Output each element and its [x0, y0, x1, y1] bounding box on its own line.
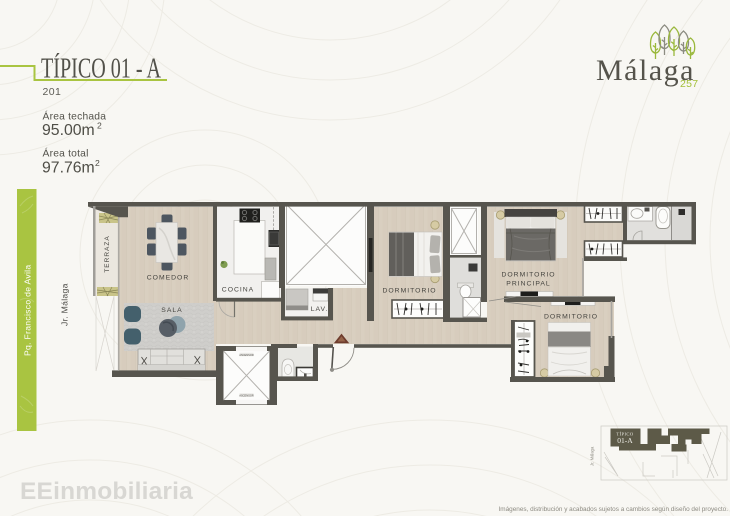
svg-text:201: 201: [43, 86, 62, 98]
svg-text:2: 2: [97, 121, 102, 131]
svg-text:COMEDOR: COMEDOR: [147, 275, 190, 282]
svg-text:ASCENSOR: ASCENSOR: [239, 393, 254, 397]
svg-text:DORMITORIO: DORMITORIO: [501, 272, 555, 279]
svg-text:COCINA: COCINA: [222, 287, 254, 294]
svg-text:ASCENSOR: ASCENSOR: [239, 353, 254, 357]
svg-text:Jr. Málaga: Jr. Málaga: [60, 283, 70, 326]
svg-text:TÍPICO 01 - A: TÍPICO 01 - A: [41, 52, 161, 85]
svg-text:SALA: SALA: [161, 307, 182, 314]
svg-text:DORMITORIO: DORMITORIO: [544, 314, 598, 321]
svg-text:Área total: Área total: [43, 147, 89, 160]
svg-text:2: 2: [95, 158, 100, 168]
svg-text:01-A: 01-A: [617, 436, 633, 445]
svg-text:257: 257: [680, 78, 698, 90]
svg-text:97.76m: 97.76m: [42, 160, 95, 177]
svg-text:LAV.: LAV.: [311, 306, 329, 313]
svg-text:Jr. Málaga: Jr. Málaga: [590, 446, 595, 466]
svg-text:95.00m: 95.00m: [42, 122, 95, 139]
svg-text:Pq. Francisco de Avila: Pq. Francisco de Avila: [23, 265, 33, 356]
svg-text:Imágenes, distribución y acaba: Imágenes, distribución y acabados sujeto…: [499, 506, 729, 513]
svg-text:TERRAZA: TERRAZA: [104, 235, 111, 272]
svg-text:EEinmobiliaria: EEinmobiliaria: [20, 478, 193, 505]
svg-text:PRINCIPAL: PRINCIPAL: [506, 281, 550, 288]
svg-text:DORMITORIO: DORMITORIO: [382, 288, 436, 295]
